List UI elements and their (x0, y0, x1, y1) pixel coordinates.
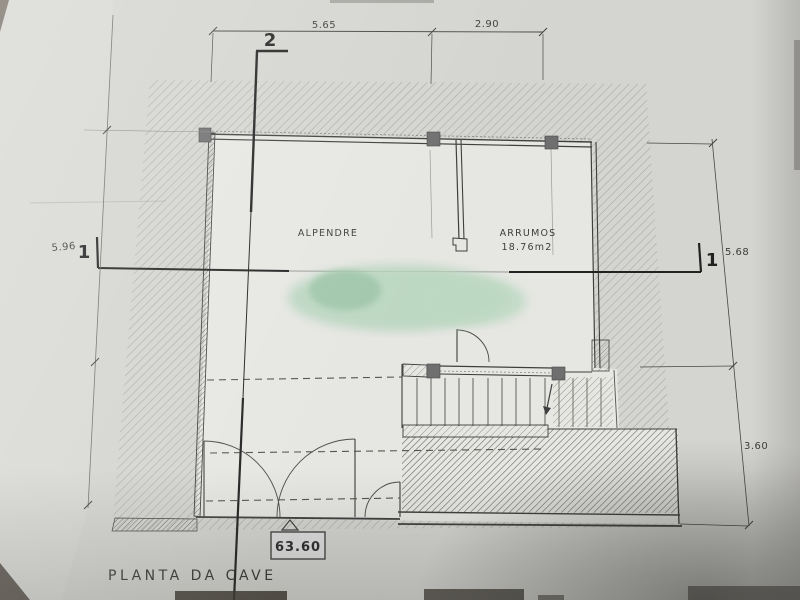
section-marker-2-label: 2 (264, 30, 277, 51)
dim-top-right-label: 2.90 (475, 19, 499, 30)
terrace-dense-hatch (402, 429, 679, 513)
scanned-floor-plan-photo: 5.65 2.90 5.96 5.68 3.60 2 1 1 ALPENDRE … (0, 0, 800, 600)
dim-right-lower-label: 3.60 (744, 441, 768, 452)
room-label-alpendre: ALPENDRE (298, 228, 358, 239)
dim-right-upper-label: 5.68 (725, 247, 749, 258)
stair-hatched-part (553, 377, 613, 427)
dim-top-left-label: 5.65 (312, 20, 336, 31)
floor-level-value: 63.60 (275, 540, 321, 555)
floor-plan-drawing: 5.65 2.90 5.96 5.68 3.60 2 1 1 ALPENDRE … (0, 0, 800, 600)
room-label-arrumos: ARRUMOS (500, 228, 557, 239)
stair-lower-wall (403, 425, 548, 437)
bottom-wall-hatch-left (112, 518, 197, 531)
section-marker-1-right-label: 1 (706, 250, 719, 271)
dim-left-label: 5.96 (51, 241, 76, 254)
room-area-arrumos: 18.76m2 (502, 242, 553, 253)
section-marker-1-left-label: 1 (78, 242, 91, 263)
drawing-title: PLANTA DA CAVE (108, 568, 277, 584)
